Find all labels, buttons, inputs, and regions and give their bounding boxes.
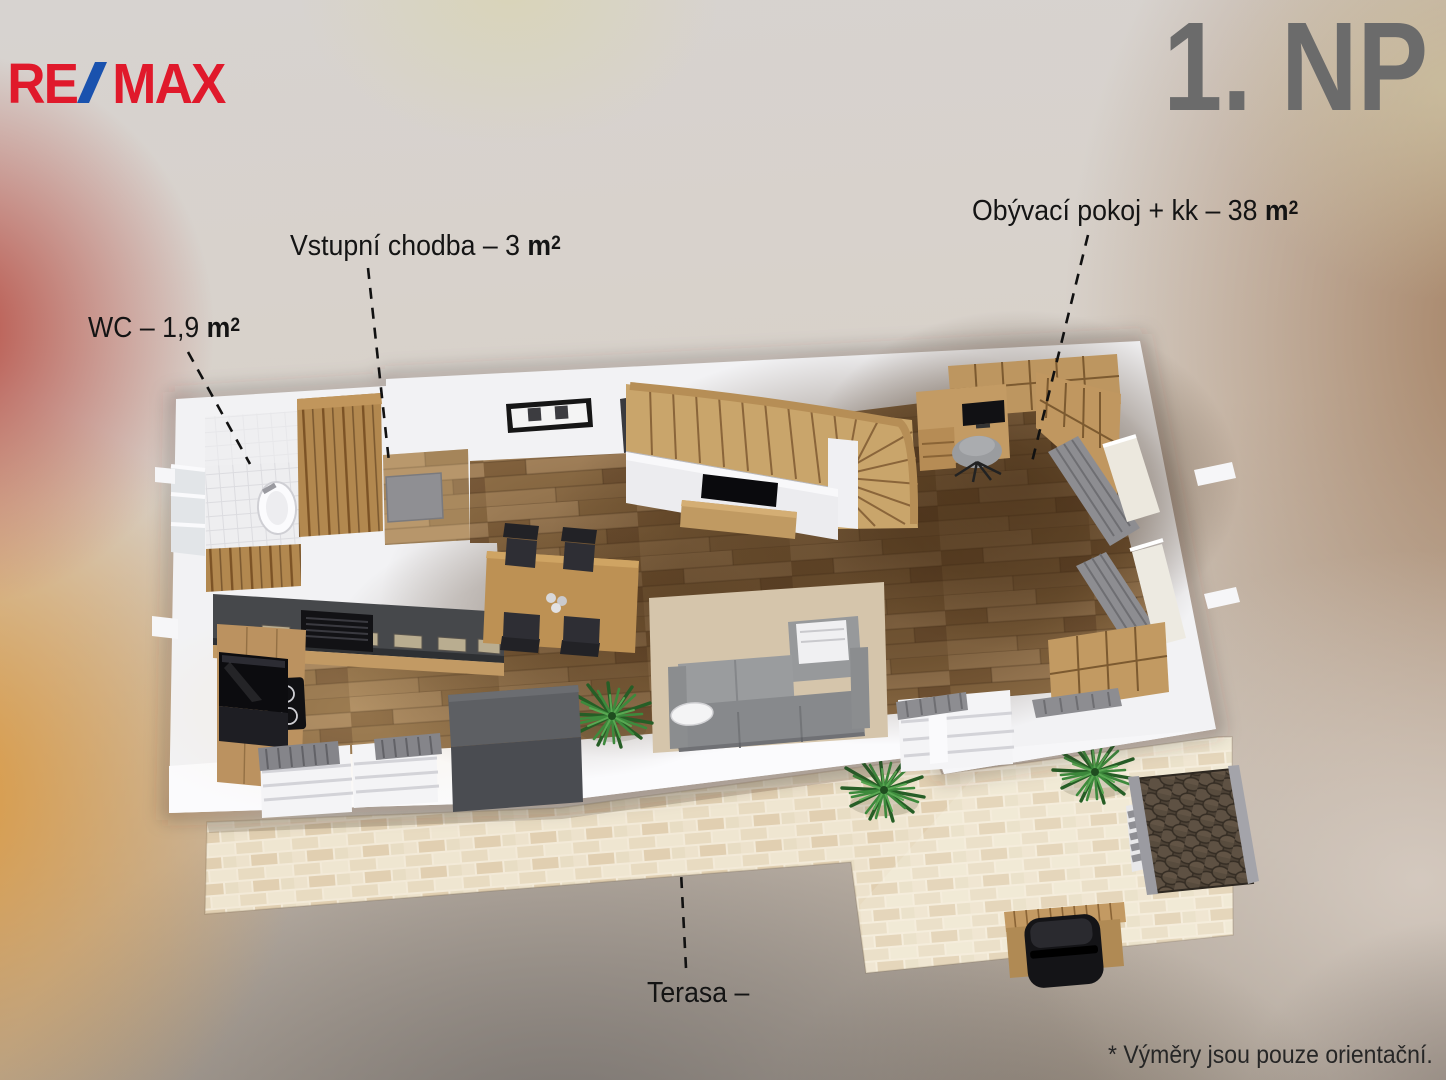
svg-text:RE: RE (10, 56, 77, 112)
svg-text:MAX: MAX (112, 56, 226, 112)
